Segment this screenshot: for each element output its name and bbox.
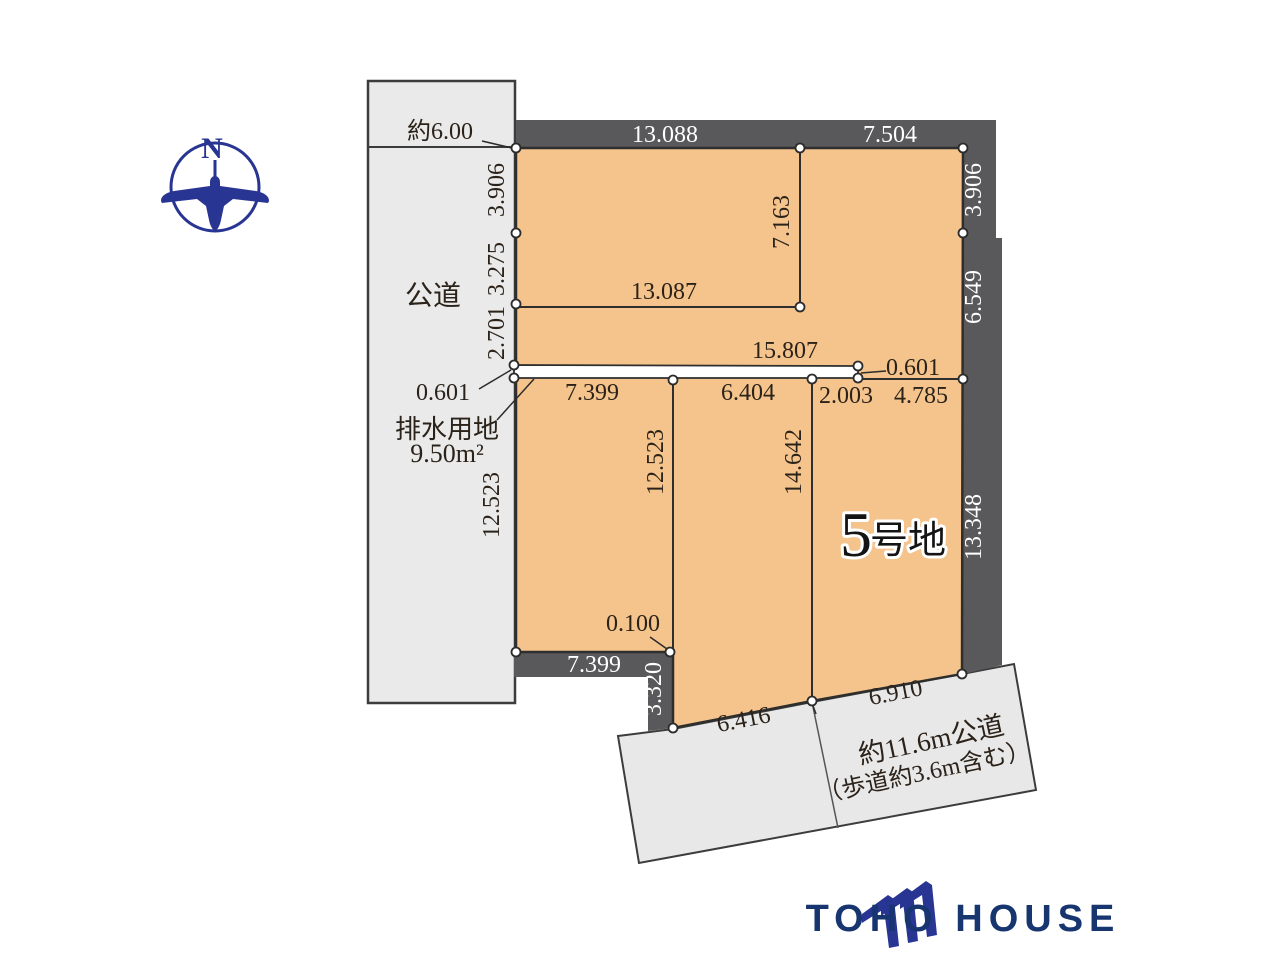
drainage-offset-right-label: 0.601 bbox=[886, 355, 940, 381]
top-band-seg1-label: 13.088 bbox=[632, 122, 698, 148]
upper-left-seg2-label: 3.275 bbox=[484, 242, 510, 296]
site-plan-canvas: 約6.00 公道 13.088 7.504 3.906 6.549 13.348… bbox=[0, 0, 1280, 960]
vertex-marker bbox=[510, 374, 519, 383]
lot-b-width-label: 6.404 bbox=[721, 380, 775, 406]
drainage-strip-shape bbox=[514, 365, 858, 378]
vertex-marker bbox=[666, 648, 675, 657]
inner-height-label: 7.163 bbox=[769, 195, 795, 249]
right-band-seg3-label: 13.348 bbox=[961, 494, 987, 560]
vertex-marker bbox=[512, 300, 521, 309]
inner-width-label: 13.087 bbox=[631, 279, 697, 305]
right-band-seg1-label: 3.906 bbox=[961, 163, 987, 217]
main-lot bbox=[514, 148, 963, 728]
drainage-length-label: 15.807 bbox=[752, 338, 818, 364]
bottom-band-seg2-label: 3.320 bbox=[641, 662, 667, 716]
vertex-marker bbox=[796, 303, 805, 312]
left-road-width-label: 約6.00 bbox=[407, 118, 473, 145]
lot-a-height-label: 12.523 bbox=[479, 472, 505, 538]
compass-north-label: N bbox=[201, 132, 223, 165]
vertex-marker bbox=[512, 648, 521, 657]
vertex-marker bbox=[854, 362, 863, 371]
vertex-marker bbox=[958, 670, 967, 679]
vertex-marker bbox=[669, 724, 678, 733]
compass: N bbox=[161, 132, 269, 232]
lot-b-height-label: 14.642 bbox=[781, 429, 807, 495]
vertex-marker bbox=[959, 229, 968, 238]
vertex-marker bbox=[959, 375, 968, 384]
site-plan-svg: 約6.00 公道 13.088 7.504 3.906 6.549 13.348… bbox=[0, 0, 1280, 960]
bottom-band-seg1-label: 7.399 bbox=[567, 652, 621, 678]
lot-area-shape bbox=[516, 148, 963, 728]
top-band-seg2-label: 7.504 bbox=[863, 122, 917, 148]
logo-company-name: TOHO HOUSE bbox=[806, 898, 1121, 940]
vertex-marker bbox=[796, 144, 805, 153]
vertex-marker bbox=[854, 374, 863, 383]
lot5-seg1-label: 2.003 bbox=[819, 383, 873, 409]
vertex-marker bbox=[512, 229, 521, 238]
vertex-marker bbox=[959, 144, 968, 153]
left-road-name-label: 公道 bbox=[405, 280, 461, 312]
vertex-marker bbox=[510, 361, 519, 370]
bird-icon bbox=[161, 176, 269, 232]
lot-a-inner-height-label: 12.523 bbox=[643, 429, 669, 495]
top-band bbox=[516, 120, 996, 148]
vertex-marker bbox=[808, 375, 817, 384]
upper-left-seg1-label: 3.906 bbox=[484, 163, 510, 217]
lot5-seg2-label: 4.785 bbox=[894, 383, 948, 409]
lot5-number: 5 bbox=[840, 499, 872, 570]
upper-left-seg3-label: 2.701 bbox=[484, 306, 510, 360]
company-logo: TOHO HOUSE bbox=[806, 881, 1121, 948]
right-band-seg2-label: 6.549 bbox=[961, 270, 987, 324]
lot5-name: 号地 bbox=[870, 520, 946, 562]
vertex-marker bbox=[808, 697, 817, 706]
vertex-marker bbox=[512, 144, 521, 153]
drainage-area-label: 9.50m² bbox=[410, 439, 484, 468]
corner-offset-label: 0.100 bbox=[606, 611, 660, 637]
lot-a-width-label: 7.399 bbox=[565, 380, 619, 406]
vertex-marker bbox=[669, 376, 678, 385]
drainage-offset-left-label: 0.601 bbox=[416, 380, 470, 406]
